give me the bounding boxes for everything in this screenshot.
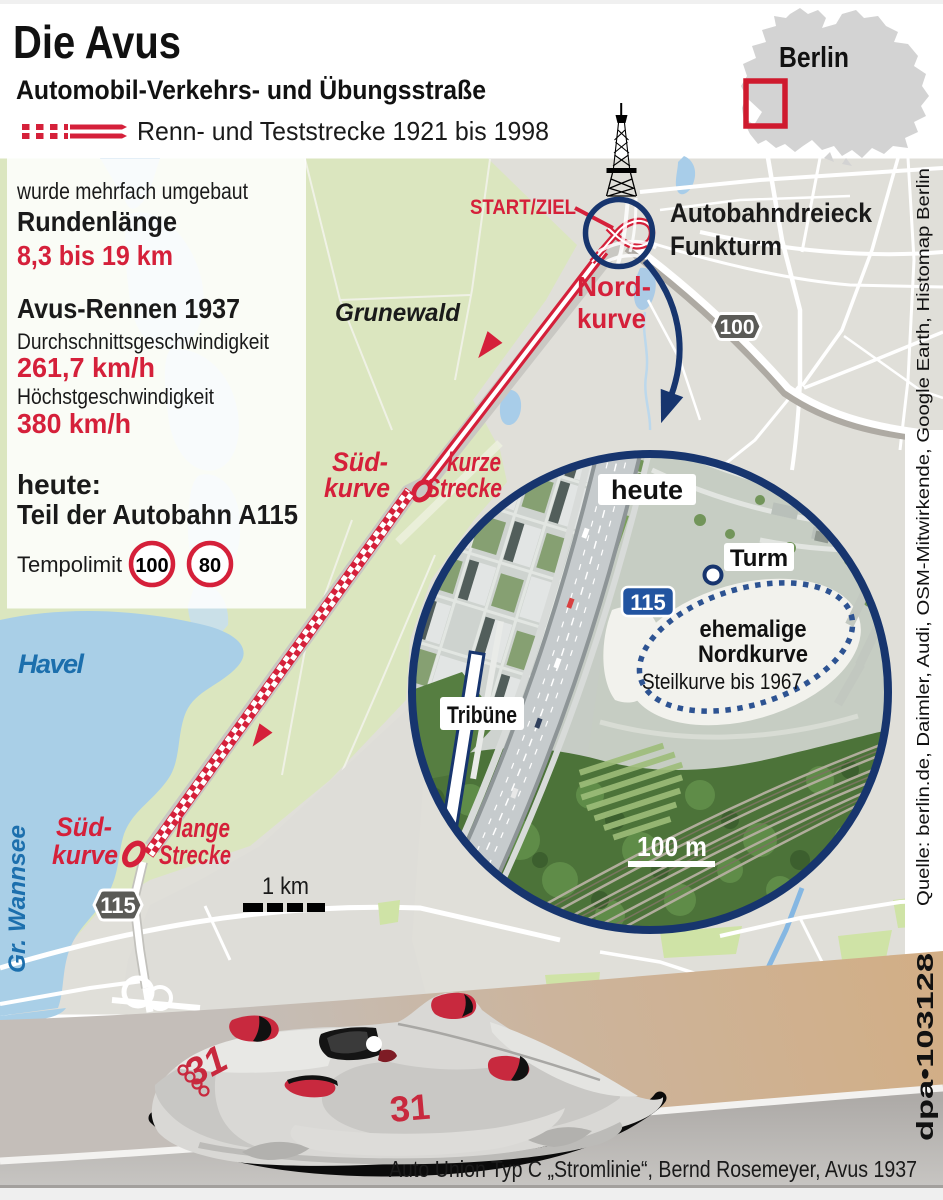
svg-text:Tempolimit: Tempolimit (17, 552, 122, 577)
svg-text:Die Avus: Die Avus (13, 16, 181, 68)
svg-text:wurde mehrfach umgebaut: wurde mehrfach umgebaut (16, 178, 248, 204)
svg-text:Süd-: Süd- (56, 812, 112, 842)
svg-text:kurve: kurve (52, 840, 118, 870)
svg-text:Turm: Turm (730, 545, 788, 572)
svg-text:115: 115 (630, 590, 666, 615)
svg-text:8,3 bis 19 km: 8,3 bis 19 km (17, 240, 173, 271)
svg-text:Nord-: Nord- (577, 271, 651, 302)
svg-text:100: 100 (135, 555, 168, 577)
svg-text:Durchschnittsgeschwindigkeit: Durchschnittsgeschwindigkeit (17, 329, 269, 354)
svg-text:kurve: kurve (324, 473, 390, 503)
svg-text:100 m: 100 m (637, 831, 707, 862)
svg-text:80: 80 (199, 555, 221, 577)
svg-text:Tribüne: Tribüne (447, 702, 517, 729)
svg-text:Höchstgeschwindigkeit: Höchstgeschwindigkeit (17, 384, 214, 409)
svg-text:heute:: heute: (17, 469, 101, 500)
svg-text:Renn- und Teststrecke 1921 bis: Renn- und Teststrecke 1921 bis 1998 (137, 116, 549, 146)
svg-text:115: 115 (100, 893, 136, 918)
svg-text:100: 100 (719, 316, 754, 339)
svg-text:Gr. Wannsee: Gr. Wannsee (4, 825, 31, 973)
svg-text:Strecke: Strecke (159, 840, 231, 870)
svg-text:Teil der Autobahn A115: Teil der Autobahn A115 (17, 499, 298, 530)
svg-text:Auto Union Typ C „Stromlinie“,: Auto Union Typ C „Stromlinie“, Bernd Ros… (389, 1156, 917, 1182)
svg-text:380 km/h: 380 km/h (17, 408, 131, 439)
svg-text:Havel: Havel (18, 649, 84, 679)
svg-text:Quelle: berlin.de, Daimler, Au: Quelle: berlin.de, Daimler, Audi, OSM-Mi… (913, 168, 933, 906)
svg-text:Strecke: Strecke (426, 473, 502, 503)
svg-text:Grunewald: Grunewald (335, 299, 461, 327)
svg-text:Rundenlänge: Rundenlänge (17, 206, 177, 237)
svg-text:ehemalige: ehemalige (700, 616, 807, 643)
svg-text:heute: heute (611, 475, 683, 505)
svg-text:Funkturm: Funkturm (670, 231, 782, 261)
svg-text:Berlin: Berlin (779, 42, 849, 74)
svg-text:Steilkurve bis 1967: Steilkurve bis 1967 (642, 669, 802, 694)
svg-text:Automobil-Verkehrs- und Übungs: Automobil-Verkehrs- und Übungsstraße (16, 75, 486, 105)
svg-text:kurve: kurve (577, 303, 646, 334)
svg-text:dpa•103128: dpa•103128 (912, 953, 938, 1141)
svg-text:lange: lange (176, 813, 230, 843)
svg-text:31: 31 (388, 1086, 431, 1130)
svg-text:START/ZIEL: START/ZIEL (470, 196, 576, 219)
svg-text:1 km: 1 km (262, 873, 309, 900)
svg-text:Avus-Rennen 1937: Avus-Rennen 1937 (17, 293, 240, 324)
svg-text:Nordkurve: Nordkurve (698, 641, 808, 668)
svg-text:261,7 km/h: 261,7 km/h (17, 352, 155, 383)
svg-text:Autobahndreieck: Autobahndreieck (670, 198, 873, 228)
